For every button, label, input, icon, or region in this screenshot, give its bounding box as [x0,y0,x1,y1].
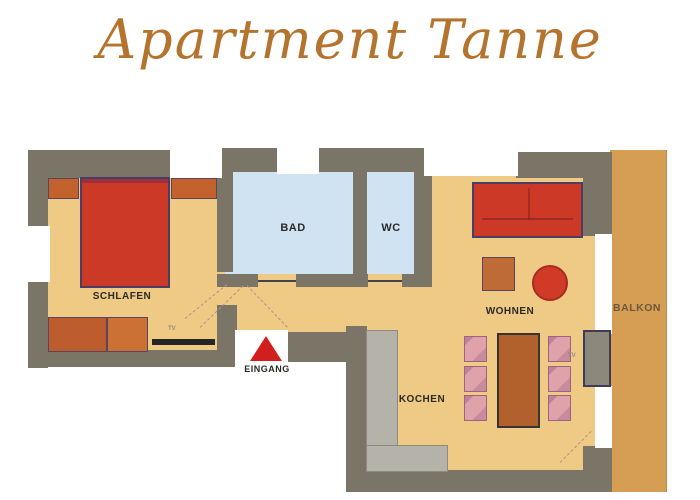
wall-living-right-upper [583,158,612,236]
dining-chair [464,336,487,362]
kochen-label: KOCHEN [382,394,462,405]
tv-cabinet-living [583,330,611,387]
bad-door-threshold [258,280,296,282]
wall-bedroom-right-lower [217,305,237,367]
sofa [472,182,583,238]
wc-label: WC [361,222,421,234]
tv-board-bedroom [152,339,215,345]
window-bad-top [277,146,319,174]
nightstand-left [48,178,79,199]
wall-top-bedroom [28,150,172,178]
balkon-floor [610,150,667,492]
wall-top-bad-right [319,148,426,172]
page: Apartment Tanne [0,0,700,500]
bed-headboard [82,179,168,183]
entrance-triangle-icon [250,336,282,361]
sofa-cushion-line [528,188,530,220]
wall-living-right-lower [583,446,612,492]
dining-chair [548,366,571,392]
dining-chair [548,395,571,421]
side-table [482,257,515,291]
wc-door-threshold [368,280,402,282]
nightstand-right [171,178,217,199]
wall-kitchen-left [346,326,367,492]
wall-bottom [346,470,610,492]
balcony-door-lower [595,386,612,448]
balcony-door-upper [595,234,612,334]
bad-label: BAD [253,222,333,234]
eingang-label: EINGANG [227,364,307,374]
wardrobe-right [107,317,148,352]
window-living-top [424,146,518,176]
pouf-armchair [532,265,568,301]
wardrobe-left [48,317,107,352]
dining-chair [464,366,487,392]
schlafen-label: SCHLAFEN [72,291,172,302]
kitchen-counter-bottom [366,445,448,472]
dining-table [497,333,540,428]
tv-label-living: TV [568,353,576,359]
dining-chair [464,395,487,421]
tv-label-bedroom: TV [168,326,176,332]
wall-left-upper [28,150,48,228]
wall-bedroom-bottom [28,350,238,367]
balkon-label: BALKON [606,302,668,314]
window-bedroom-left [26,226,50,282]
window-bedroom-top [170,146,222,178]
floor-plan: SCHLAFEN BAD WC WOHNEN KOCHEN BALKON EIN… [0,0,700,500]
bed [80,177,170,288]
wohnen-label: WOHNEN [465,306,555,317]
